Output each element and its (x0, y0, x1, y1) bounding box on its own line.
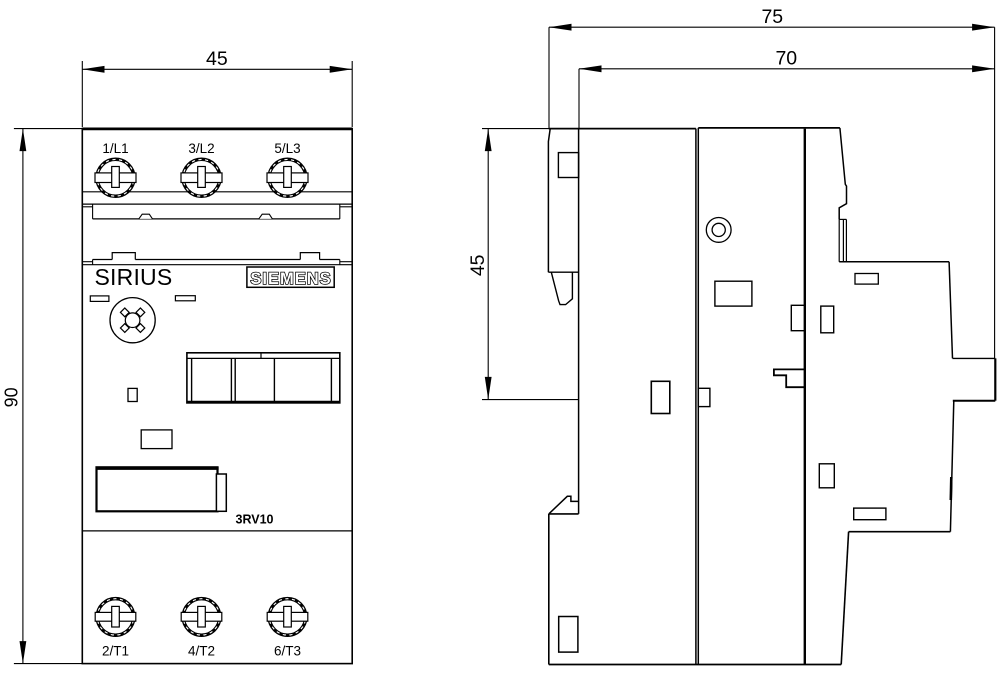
svg-text:45: 45 (467, 254, 489, 276)
svg-text:3RV10: 3RV10 (236, 513, 274, 527)
svg-text:90: 90 (2, 387, 22, 407)
svg-text:5/L3: 5/L3 (274, 141, 300, 156)
svg-text:70: 70 (775, 48, 797, 70)
svg-text:45: 45 (206, 48, 228, 70)
svg-text:SIRIUS: SIRIUS (95, 264, 173, 290)
svg-text:4/T2: 4/T2 (188, 643, 215, 658)
svg-text:75: 75 (761, 6, 783, 28)
svg-text:6/T3: 6/T3 (274, 643, 301, 658)
svg-text:1/L1: 1/L1 (102, 141, 128, 156)
svg-text:2/T1: 2/T1 (102, 643, 129, 658)
svg-text:SIEMENS: SIEMENS (250, 270, 331, 288)
svg-text:3/L2: 3/L2 (188, 141, 214, 156)
